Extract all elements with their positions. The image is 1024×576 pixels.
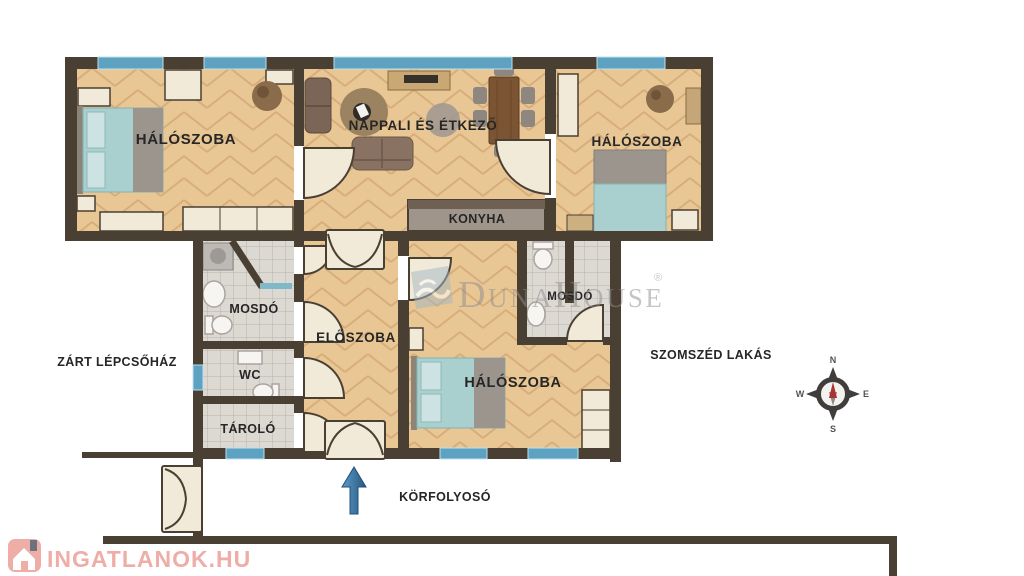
pillow <box>87 152 105 188</box>
entrance-arrow-icon <box>342 467 366 514</box>
toilet <box>212 316 232 334</box>
wall-hall-bedroom-b <box>398 300 409 448</box>
toilet-tank <box>533 242 553 249</box>
wall-living-bedroomR-b <box>545 198 556 241</box>
dining-table <box>489 77 519 144</box>
wall-living-bedroomR-a <box>545 57 556 134</box>
chair <box>473 87 487 104</box>
label-living-dining: NAPPALI ÉS ÉTKEZŐ <box>349 118 498 133</box>
label-bedroom-right: HÁLÓSZOBA <box>592 134 683 149</box>
double-door-hall-bottom <box>325 421 385 459</box>
chair <box>521 87 535 104</box>
bed-headboard <box>77 106 83 194</box>
wardrobe <box>165 70 201 100</box>
wall-wc-tarolo <box>193 396 304 404</box>
plant-detail <box>257 86 269 98</box>
wall-building-bottom <box>103 536 897 544</box>
washing-machine-door <box>210 248 226 264</box>
window <box>334 57 512 69</box>
window <box>226 448 264 459</box>
wall-hall-column-b <box>294 274 304 302</box>
window <box>193 365 203 390</box>
label-neighbor: SZOMSZÉD LAKÁS <box>650 347 772 362</box>
shower-screen <box>260 283 292 289</box>
label-stairwell: ZÁRT LÉPCSŐHÁZ <box>57 354 177 369</box>
registered-mark: ® <box>654 272 662 284</box>
sink <box>203 281 225 307</box>
counter-edge <box>408 200 545 209</box>
bed-blanket <box>133 108 163 192</box>
house-icon-door <box>21 561 28 570</box>
window <box>597 57 665 69</box>
nightstand <box>409 328 423 350</box>
wall-washroomR-bottom-a <box>517 337 567 345</box>
pillow <box>421 362 441 390</box>
double-door-hall-top <box>326 230 384 269</box>
chair <box>521 110 535 127</box>
dresser <box>686 88 701 124</box>
chest <box>567 215 593 231</box>
plant-detail <box>651 90 661 100</box>
bed-headboard <box>411 356 417 430</box>
compass-label-e: E <box>863 389 869 399</box>
window <box>98 57 163 69</box>
wall-hall-bedroom-a <box>398 241 409 256</box>
bed-pillow-end <box>594 150 666 184</box>
window <box>204 57 266 69</box>
wardrobe <box>183 207 293 231</box>
wardrobe <box>582 390 610 450</box>
label-washroom-left: MOSDÓ <box>229 301 278 316</box>
double-bed <box>594 184 666 232</box>
double-door-stairwell <box>162 466 202 532</box>
label-bedroom-bottom: HÁLÓSZOBA <box>464 373 561 391</box>
floor-plan-page: HÁLÓSZOBA NAPPALI ÉS ÉTKEZŐ HÁLÓSZOBA KO… <box>0 0 1024 576</box>
wall-hall-column-a <box>294 241 304 247</box>
nightstand <box>77 196 95 211</box>
wall-mid-right <box>610 241 621 462</box>
portal-name: INGATLANOK.HU <box>47 546 251 572</box>
compass-label-n: N <box>830 355 837 365</box>
label-storage: TÁROLÓ <box>220 421 275 436</box>
floor-plan: HÁLÓSZOBA NAPPALI ÉS ÉTKEZŐ HÁLÓSZOBA KO… <box>0 0 1024 576</box>
wall-right <box>701 57 713 241</box>
wall-corridor-west <box>82 452 193 458</box>
compass-label-s: S <box>830 424 836 434</box>
sink <box>238 351 262 364</box>
wall-bedroomL-living-a <box>294 57 304 146</box>
label-kitchen: KONYHA <box>449 212 506 226</box>
pillow <box>87 112 105 148</box>
label-bedroom-left: HÁLÓSZOBA <box>136 130 236 148</box>
nightstand <box>78 88 110 106</box>
compass-rose-icon: N E S W <box>796 355 869 434</box>
window <box>440 448 487 459</box>
wall-building-right <box>889 536 897 576</box>
window <box>528 448 578 459</box>
plant-icon <box>646 85 674 113</box>
wall-washroomR-bottom-b <box>603 337 621 345</box>
bed-blanket <box>474 358 505 428</box>
wall-mosdo-wc <box>193 341 304 349</box>
compass-label-w: W <box>796 389 805 399</box>
label-wc: WC <box>239 368 261 382</box>
toilet <box>534 249 552 269</box>
label-corridor: KÖRFOLYOSÓ <box>399 489 491 504</box>
wall-upper-bottom <box>65 231 713 241</box>
wall-left <box>65 57 77 241</box>
wardrobe <box>558 74 578 136</box>
nightstand <box>672 210 698 230</box>
agency-logo-icon <box>411 266 453 309</box>
tv <box>404 75 438 83</box>
label-hall: ELŐSZOBA <box>316 330 396 345</box>
dresser <box>100 212 163 231</box>
house-icon-chimney <box>30 540 37 551</box>
pillow <box>421 394 441 422</box>
wall-bedroomL-living-b <box>294 200 304 241</box>
